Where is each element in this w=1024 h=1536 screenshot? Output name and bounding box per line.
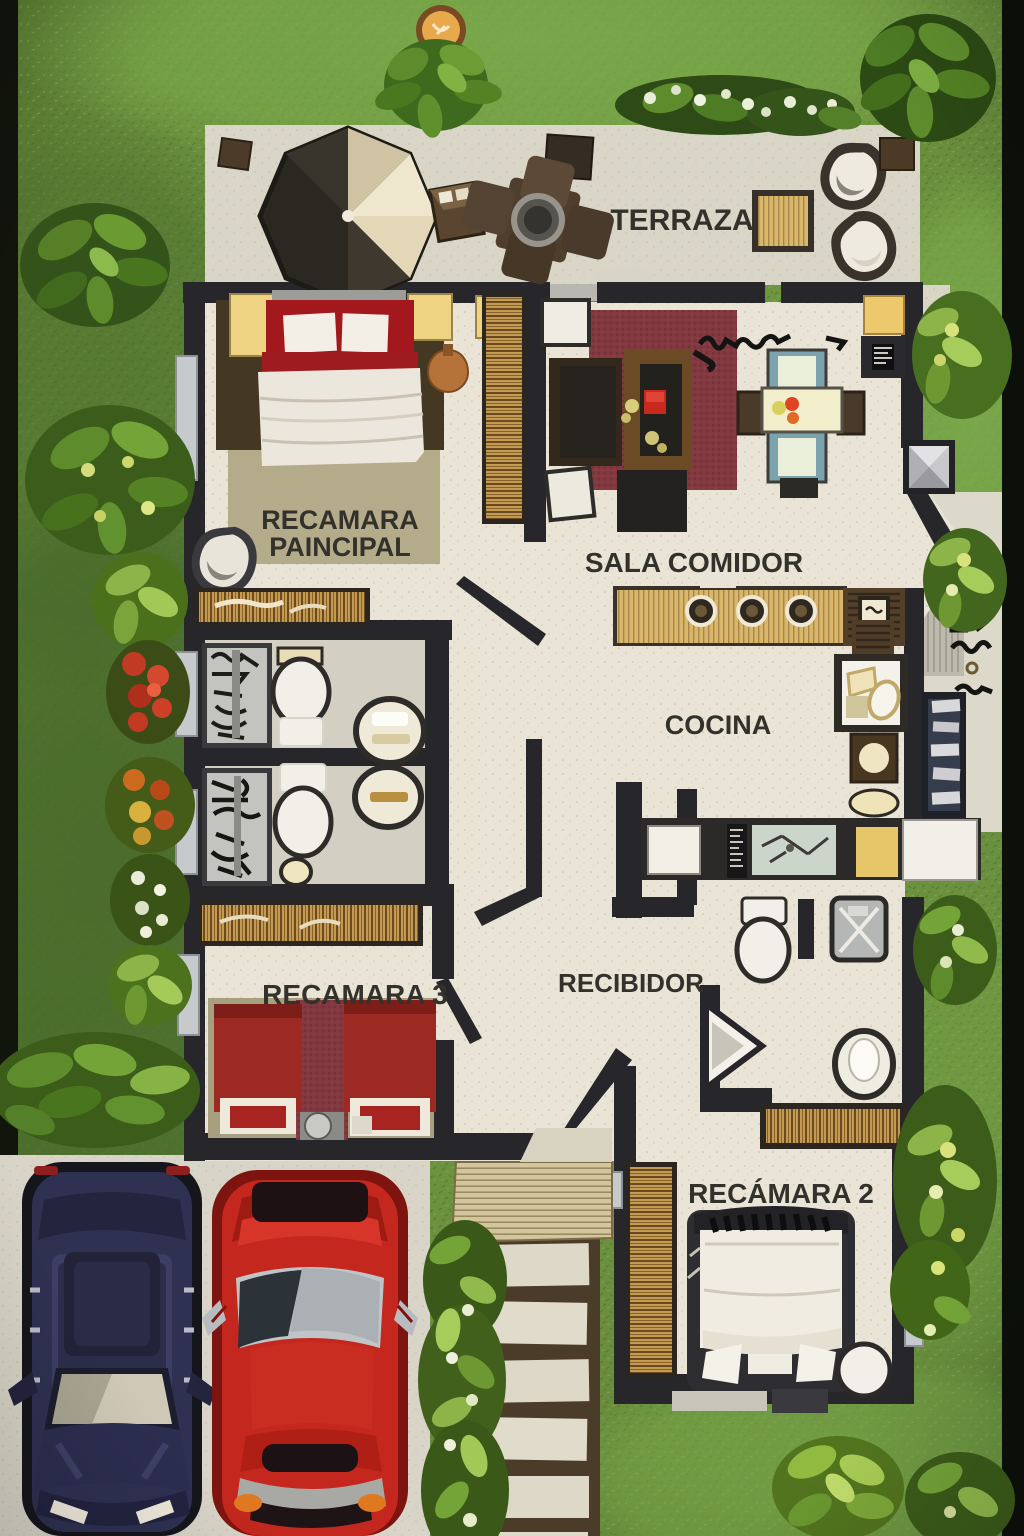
- svg-text:TERRAZA: TERRAZA: [610, 204, 753, 237]
- svg-text:RECAMARA: RECAMARA: [261, 505, 419, 535]
- svg-text:RECÁMARA 2: RECÁMARA 2: [688, 1178, 874, 1209]
- svg-text:SALA COMIDOR: SALA COMIDOR: [585, 547, 803, 578]
- svg-text:RECIBIDOR: RECIBIDOR: [558, 968, 704, 998]
- svg-text:PAINCIPAL: PAINCIPAL: [269, 532, 411, 562]
- svg-text:COCINA: COCINA: [665, 710, 772, 740]
- svg-text:RECAMARA 3: RECAMARA 3: [262, 979, 448, 1010]
